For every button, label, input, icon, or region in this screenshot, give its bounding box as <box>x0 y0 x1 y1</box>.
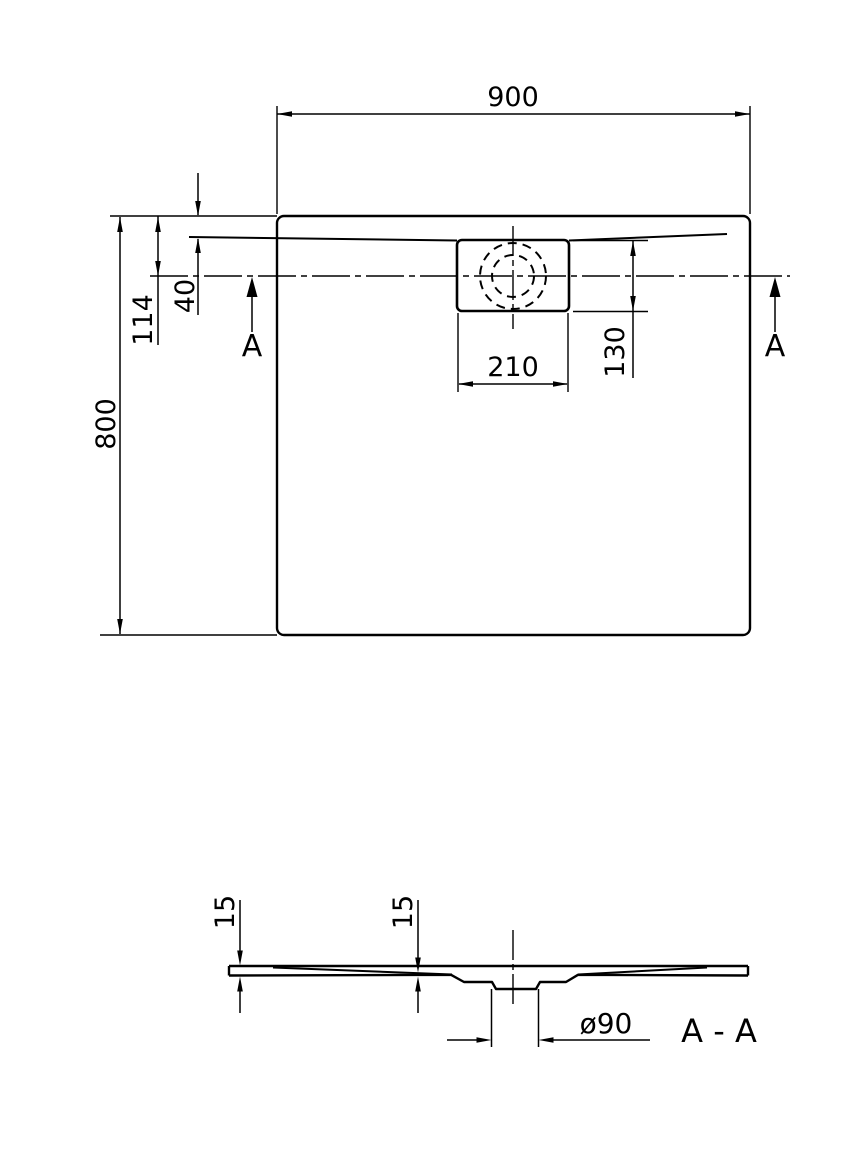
dim-40: 40 <box>170 173 201 315</box>
section-marker-left-label: A <box>242 329 263 364</box>
arrowhead <box>458 381 473 387</box>
arrowhead <box>195 238 201 253</box>
dim-114-label: 114 <box>128 294 159 346</box>
dim-114: 114 <box>128 216 161 346</box>
dim-130: 130 <box>573 241 648 379</box>
arrowhead <box>155 217 161 232</box>
arrowhead <box>477 1037 492 1043</box>
arrowhead <box>630 241 636 256</box>
arrowhead <box>237 977 243 992</box>
arrowhead <box>277 111 292 117</box>
technical-drawing: 900 800 114 40 <box>0 0 866 1172</box>
dim-15-drain-label: 15 <box>388 895 419 929</box>
arrowhead <box>237 951 243 966</box>
arrowhead <box>415 977 421 992</box>
dim-diameter-90-label: ø90 <box>580 1007 633 1040</box>
arrowhead <box>539 1037 554 1043</box>
dim-210-label: 210 <box>487 352 539 383</box>
dim-40-label: 40 <box>170 279 201 313</box>
section-view: 15 15 ø90 A - A <box>210 895 757 1050</box>
arrowhead <box>553 381 568 387</box>
dim-15-edge: 15 <box>210 895 243 1013</box>
arrowhead <box>630 296 636 311</box>
dim-diameter-90: ø90 <box>447 1007 650 1043</box>
arrowhead <box>195 201 201 216</box>
dim-15-edge-label: 15 <box>210 895 241 929</box>
arrowhead <box>117 619 123 634</box>
dim-900: 900 <box>277 82 750 214</box>
floor-edge-right-line <box>569 234 727 241</box>
surface-slope-left <box>273 968 452 975</box>
surface-slope-right <box>578 968 707 975</box>
section-marker-right: A <box>765 277 786 364</box>
section-title: A - A <box>681 1012 757 1050</box>
section-arrow-icon <box>247 277 258 297</box>
dim-130-label: 130 <box>600 326 631 378</box>
dim-15-drain: 15 <box>388 895 421 1013</box>
arrowhead <box>117 217 123 232</box>
drawing-sheet: 900 800 114 40 <box>0 0 866 1172</box>
top-view: 900 800 114 40 <box>91 82 790 635</box>
dim-800-label: 800 <box>91 398 122 450</box>
tray-bottom-profile <box>229 975 748 989</box>
floor-edge-left-line <box>189 237 457 241</box>
arrowhead <box>735 111 750 117</box>
section-arrow-icon <box>770 277 781 297</box>
dim-900-label: 900 <box>487 82 539 113</box>
section-marker-left: A <box>242 277 263 364</box>
section-marker-right-label: A <box>765 329 786 364</box>
arrowhead <box>155 261 161 276</box>
